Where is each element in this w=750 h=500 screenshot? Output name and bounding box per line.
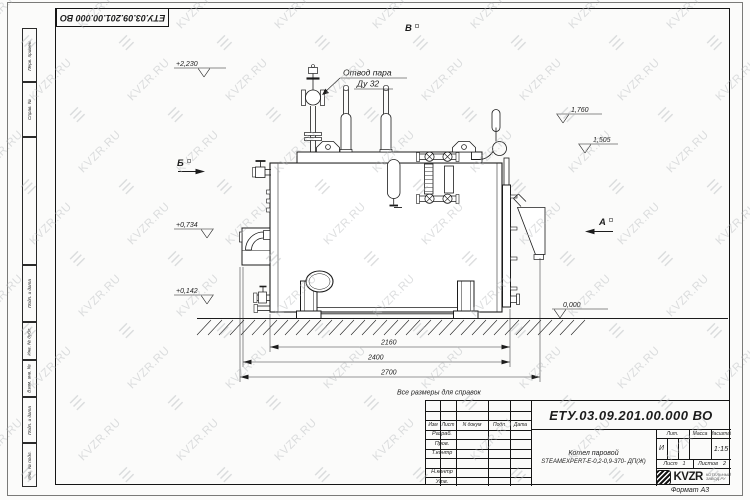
stamp-empty bbox=[22, 137, 37, 265]
tb-row-tkontr: Т.контр bbox=[426, 449, 456, 459]
tb-header-sign: Подп bbox=[488, 420, 510, 430]
corner-number-box: ЕТУ.03.09.201.00.000 ВО bbox=[56, 8, 169, 27]
kvzr-logo-icon bbox=[656, 470, 671, 485]
corner-number: ЕТУ.03.09.201.00.000 ВО bbox=[60, 13, 165, 23]
tb-mass-header: Масса bbox=[689, 429, 711, 438]
tb-doc-number: ЕТУ.03.09.201.00.000 ВО bbox=[531, 401, 731, 429]
stamp-podp-data-2: Подп. и дата bbox=[22, 397, 37, 443]
title-block: Изм Лист N докум Подп Дата Разраб. Пров.… bbox=[425, 400, 730, 485]
stamp-vzam-inv: Взам. инв. № bbox=[22, 360, 37, 397]
stamp-inv-podl: Инв. № подл. bbox=[22, 443, 37, 487]
tb-lit-value: И bbox=[656, 438, 667, 459]
tb-row-utv: Утв. bbox=[426, 477, 456, 486]
tb-row-razrab: Разраб. bbox=[426, 430, 456, 440]
product-name-line1: Котел паровой bbox=[568, 450, 618, 457]
tb-scale-header: Масштаб bbox=[711, 429, 731, 438]
tb-sheet: Лист 1 bbox=[656, 459, 693, 468]
format-label: Формат А3 bbox=[645, 487, 735, 494]
stamp-sprav-no: Справ. № bbox=[22, 82, 37, 137]
drawing-sheet: Отвод пара Ду 32 +2,230 1,760 1,505 +0,7… bbox=[0, 0, 750, 500]
tb-header-izm: Изм bbox=[426, 420, 440, 430]
tb-mass-value bbox=[689, 438, 711, 459]
tb-header-date: Дата bbox=[510, 420, 531, 430]
tb-sheets-total: Листов 2 bbox=[693, 459, 731, 468]
stamp-perv-primen: Перв. примен. bbox=[22, 28, 37, 82]
tb-product-name: Котел паровой STEAMEXPERT-E-0,2-0,9-370-… bbox=[531, 429, 656, 486]
tb-row-nkontr: Н.контр bbox=[426, 468, 456, 478]
tb-lit-header: Лит. bbox=[656, 429, 689, 438]
product-name-line2: STEAMEXPERT-E-0,2-0,9-370- ДП(Ж) bbox=[541, 459, 645, 465]
tb-scale-value: 1:15 bbox=[711, 438, 731, 459]
stamp-podp-data-1: Подп. и дата bbox=[22, 265, 37, 322]
tb-row-prov: Пров. bbox=[426, 439, 456, 449]
tb-header-list: Лист bbox=[440, 420, 456, 430]
stamp-inv-dubl: Инв. № дубл. bbox=[22, 322, 37, 360]
kvzr-logo-text: KVZR bbox=[674, 471, 703, 483]
tb-header-doc: N докум bbox=[456, 420, 488, 430]
tb-logo-cell: KVZR КОТЕЛЬНЫЙ ЗАВОД.РУ bbox=[656, 468, 731, 486]
kvzr-logo-subtitle: КОТЕЛЬНЫЙ ЗАВОД.РУ bbox=[706, 473, 731, 482]
